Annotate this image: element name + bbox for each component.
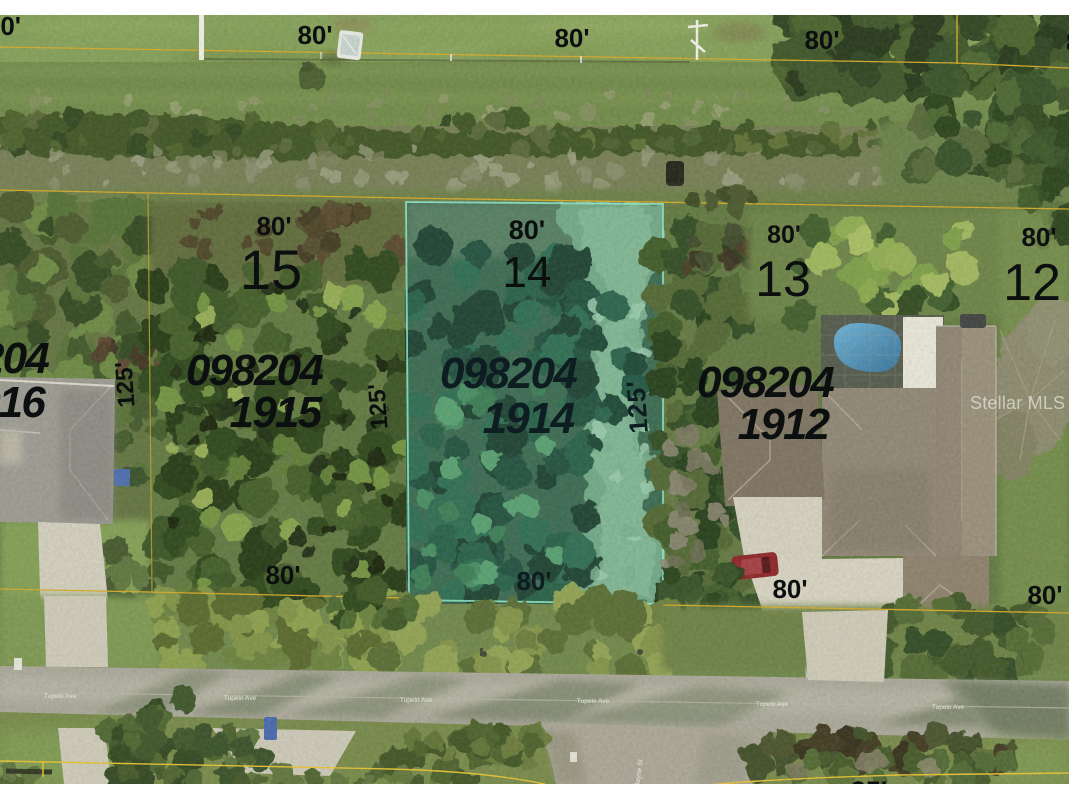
svg-text:80': 80' (804, 25, 839, 55)
svg-text:125': 125' (363, 383, 393, 431)
svg-text:80': 80' (509, 215, 545, 245)
svg-text:15: 15 (240, 238, 302, 301)
svg-text:80': 80' (772, 574, 807, 604)
svg-text:098204: 098204 (440, 349, 577, 398)
svg-text:Tupelo Ave: Tupelo Ave (577, 698, 610, 705)
svg-text:80': 80' (256, 211, 291, 241)
svg-text:Tupelo Ave: Tupelo Ave (400, 697, 433, 704)
svg-text:Tupelo Ave: Tupelo Ave (756, 701, 789, 708)
svg-text:80': 80' (297, 20, 332, 50)
svg-text:1914: 1914 (483, 394, 575, 443)
svg-text:125': 125' (110, 361, 140, 409)
svg-text:Stellar MLS: Stellar MLS (970, 393, 1065, 413)
svg-text:25': 25' (851, 776, 887, 801)
svg-text:80': 80' (1027, 580, 1062, 610)
svg-text:Tupelo Ave: Tupelo Ave (224, 695, 257, 702)
svg-text:Tupelo Ave: Tupelo Ave (44, 693, 77, 700)
svg-text:80': 80' (1021, 222, 1056, 252)
svg-text:1916: 1916 (0, 378, 46, 427)
svg-text:Tupelo Ave: Tupelo Ave (932, 704, 965, 711)
svg-text:098204: 098204 (0, 334, 49, 383)
svg-text:14: 14 (503, 248, 552, 297)
svg-text:80': 80' (767, 221, 801, 249)
svg-text:1912: 1912 (738, 400, 831, 449)
svg-text:80': 80' (554, 23, 589, 53)
svg-text:125': 125' (620, 379, 654, 435)
svg-text:80': 80' (265, 560, 300, 590)
svg-text:80': 80' (516, 566, 551, 596)
svg-text:80': 80' (0, 11, 21, 41)
svg-text:1915: 1915 (230, 388, 323, 437)
svg-text:12: 12 (1003, 254, 1061, 312)
svg-text:13: 13 (755, 251, 811, 307)
